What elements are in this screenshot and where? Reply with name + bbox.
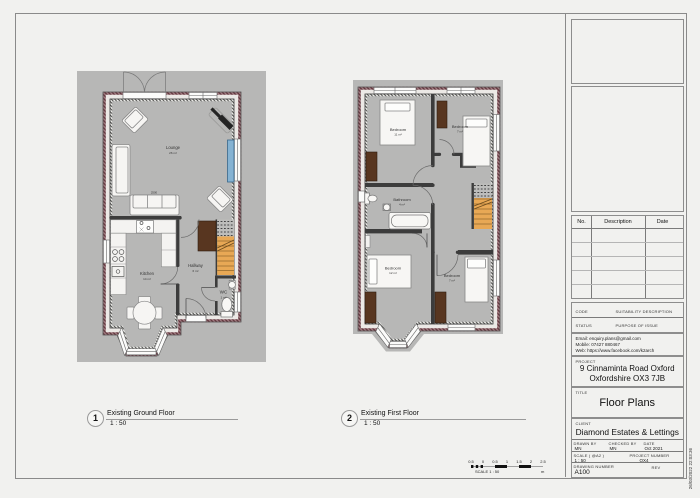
svg-text:2.5: 2.5 xyxy=(540,459,546,464)
svg-text:4 m²: 4 m² xyxy=(399,203,405,207)
svg-text:0.5: 0.5 xyxy=(492,459,498,464)
svg-text:14 m²: 14 m² xyxy=(143,277,151,281)
svg-text:0: 0 xyxy=(482,459,485,464)
svg-text:Bedroom: Bedroom xyxy=(385,266,402,271)
svg-text:6 m²: 6 m² xyxy=(193,269,199,273)
svg-text:7 m²: 7 m² xyxy=(457,130,463,134)
svg-text:2500: 2500 xyxy=(151,191,158,195)
svg-text:0.5: 0.5 xyxy=(468,459,474,464)
svg-text:WC: WC xyxy=(220,290,228,295)
svg-text:Bedroom: Bedroom xyxy=(390,127,407,132)
svg-text:m: m xyxy=(541,469,545,474)
svg-text:7 m²: 7 m² xyxy=(449,279,455,283)
svg-text:1.5: 1.5 xyxy=(516,459,522,464)
svg-text:12 m²: 12 m² xyxy=(389,271,397,275)
svg-text:Bedroom: Bedroom xyxy=(452,124,469,129)
svg-text:SCALE 1 : 50: SCALE 1 : 50 xyxy=(475,469,500,474)
svg-text:Hallway: Hallway xyxy=(188,263,204,268)
svg-text:11 m²: 11 m² xyxy=(394,133,401,137)
svg-text:2: 2 xyxy=(530,459,533,464)
svg-text:Bathroom: Bathroom xyxy=(393,197,411,202)
svg-text:1: 1 xyxy=(506,459,509,464)
svg-text:Bedroom: Bedroom xyxy=(444,273,461,278)
svg-text:26 m²: 26 m² xyxy=(169,151,177,155)
svg-text:Lounge: Lounge xyxy=(166,145,181,150)
svg-text:Kitchen: Kitchen xyxy=(140,271,155,276)
svg-text:1 m²: 1 m² xyxy=(221,296,227,300)
